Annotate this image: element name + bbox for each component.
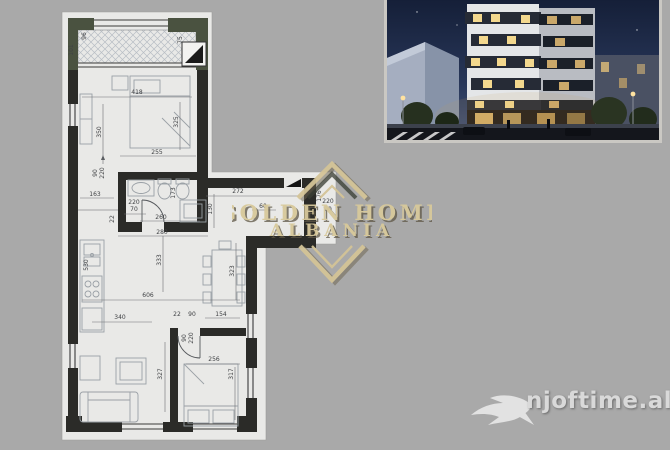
dimension-label: 173 xyxy=(170,187,177,199)
dimension-label: 317 xyxy=(228,368,235,380)
dimension-label: 90 xyxy=(181,334,188,342)
golden-home-watermark: GOLDEN HOME GOLDEN HOME ALBANIA ALBANIA xyxy=(232,156,432,306)
dimension-label: 325 xyxy=(173,116,180,128)
dimension-label: 255 xyxy=(151,149,163,156)
dimension-label: 163 xyxy=(89,191,101,198)
dimension-label: 90 xyxy=(188,311,196,318)
dimension-label: 22 xyxy=(109,215,116,223)
dimension-label: 418 xyxy=(131,89,143,96)
chevron-up-icon xyxy=(298,164,369,200)
dimension-label: 340 xyxy=(114,314,126,321)
dimension-label: 90 xyxy=(92,169,99,177)
dimension-label: 130 xyxy=(207,203,214,215)
dimension-label: 70 xyxy=(130,206,138,213)
listing-image: 9610175418350325255902201631732207022260… xyxy=(0,0,670,450)
dimension-label: 220 xyxy=(188,332,195,344)
njoftime-logo: njoftime.al xyxy=(468,386,668,434)
dimension-label: 260 xyxy=(155,214,167,221)
building-render xyxy=(387,0,659,140)
dimension-label: 280 xyxy=(156,229,168,236)
bird-icon xyxy=(468,392,534,428)
chevron-down-icon xyxy=(300,246,367,282)
dimension-label: 154 xyxy=(215,311,227,318)
dimension-label: 606 xyxy=(142,292,154,299)
balcony xyxy=(68,18,208,70)
dimension-label: 327 xyxy=(157,368,164,380)
njoftime-logo-text: njoftime.al xyxy=(526,388,670,414)
dimension-label: 22 xyxy=(173,311,181,318)
building-photo xyxy=(384,0,662,143)
dimension-label: 350 xyxy=(96,126,103,138)
dimension-label: 530 xyxy=(83,259,90,271)
dimension-label: 220 xyxy=(99,167,106,179)
dimension-label: 101 xyxy=(68,44,75,56)
dimension-label: 75 xyxy=(177,36,184,44)
watermark-line2: ALBANIA xyxy=(269,221,394,241)
dimension-label: 220 xyxy=(128,199,140,206)
dimension-label: 256 xyxy=(208,356,220,363)
dimension-label: 333 xyxy=(156,254,163,266)
dimension-label: 96 xyxy=(81,32,88,40)
